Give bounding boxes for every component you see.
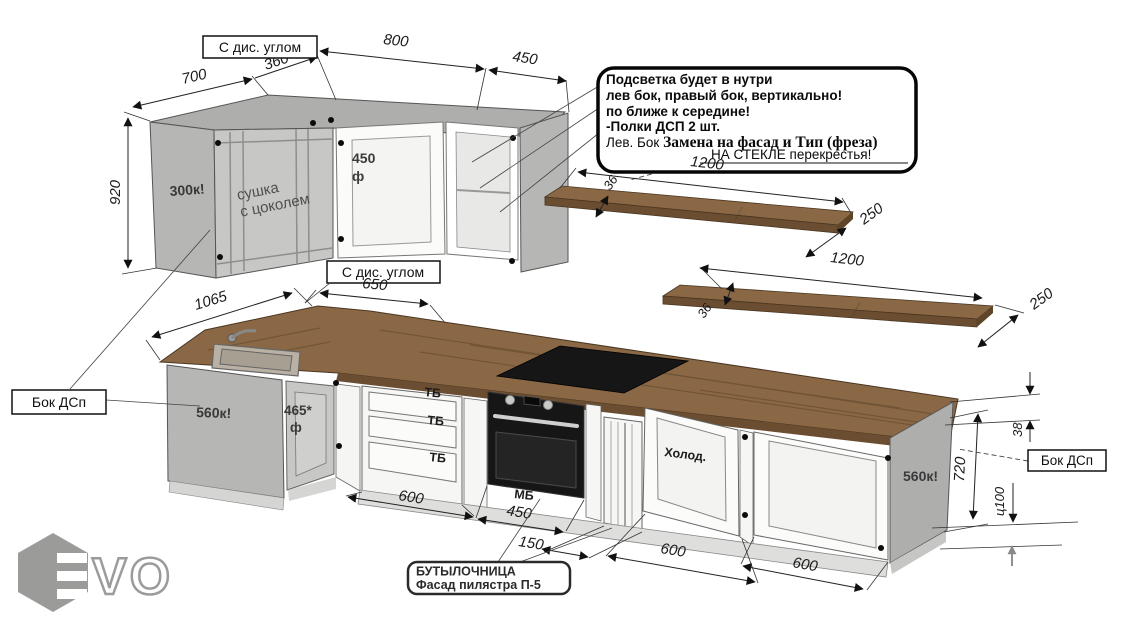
dim-shelf2-1200: 1200 [830, 249, 866, 270]
evo-wordmark: VO [92, 548, 173, 606]
glass-note: НА СТЕКЛЕ перекрестья! [711, 147, 871, 162]
drawer-label: ТБ [429, 450, 447, 466]
kitchen-drawing: 300к! сушка с цоколем 450 ф 700 360* 800… [0, 0, 1141, 627]
dim-600-fridge: 600 [659, 540, 687, 561]
dim-920: 920 [107, 179, 124, 205]
evo-logo: VO [18, 533, 173, 612]
stile-a [336, 384, 360, 491]
dim-800: 800 [383, 31, 410, 51]
oven [488, 392, 584, 498]
upper-mid-door-label: 450 [352, 150, 376, 166]
dim-plinth-100: ц100 [992, 486, 1007, 516]
right-panel-label: 560к! [903, 468, 938, 484]
side-panel-note-right-label: Бок ДСп [1041, 453, 1093, 468]
bottle-note-line1: БУТЫЛОЧНИЦА [416, 565, 516, 579]
dim-450-upper: 450 [511, 48, 539, 68]
note-line1: Подсветка будет в нутри [606, 72, 772, 87]
stile-mb [464, 398, 487, 508]
oven-glass [496, 432, 576, 488]
dim-1065: 1065 [192, 288, 230, 314]
sink-cabinet-side [167, 365, 284, 498]
lower-cabinet-group: 560к! 465* ф ТБ ТБ ТБ МБ [160, 306, 958, 577]
pilaster-p5 [604, 417, 642, 530]
sink-cabinet-label: 560к! [196, 404, 232, 421]
dim-700: 700 [180, 66, 209, 88]
corner-note-top-label: С дис. углом [219, 39, 301, 55]
dim-720: 720 [951, 456, 969, 483]
drawer-label: ТБ [427, 413, 445, 429]
upper-mid-door-label-f: ф [352, 168, 364, 184]
oven-display [524, 396, 540, 406]
dim-38: 38 [1010, 422, 1025, 437]
bottle-note-line2: Фасад пилястра П-5 [416, 578, 541, 592]
dim-shelf1-250: 250 [856, 199, 888, 228]
upper-left-cabinet-label: 300к! [169, 181, 205, 199]
upper-left-side-panel [150, 122, 216, 278]
kitchen-drawing-page: 300к! сушка с цоколем 450 ф 700 360* 800… [0, 0, 1141, 627]
oven-knob [544, 401, 553, 410]
wall-shelf-2: 1200 36 250 [663, 249, 1057, 347]
side-panel-note-left-label: Бок ДСп [32, 394, 86, 410]
corner-door-label-f: ф [290, 420, 302, 435]
stile-c [740, 430, 753, 546]
dim-650: 650 [362, 275, 389, 294]
stile-b [586, 404, 601, 521]
upper-cabinet-group: 300к! сушка с цоколем 450 ф [150, 95, 568, 278]
corner-door-label: 465* [284, 403, 313, 418]
note-line4: -Полки ДСП 2 шт. [606, 119, 720, 134]
note-line3: по ближе к середине! [606, 104, 750, 119]
note-line2: лев бок, правый бок, вертикально! [606, 88, 842, 103]
oven-module-label: МБ [514, 487, 535, 503]
dim-150: 150 [517, 533, 545, 554]
dim-shelf2-250: 250 [1026, 284, 1058, 313]
drawer-label: ТБ [424, 385, 442, 401]
dim-600-right: 600 [791, 554, 819, 575]
oven-knob [506, 396, 515, 405]
